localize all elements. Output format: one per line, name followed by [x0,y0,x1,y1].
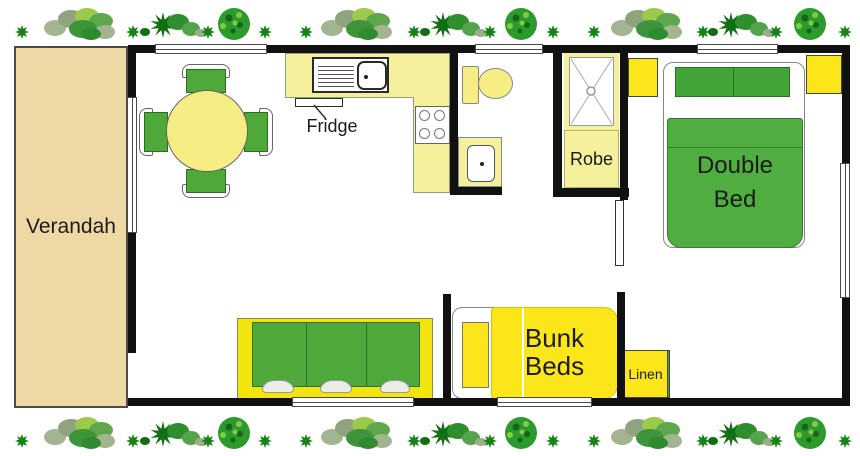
window [127,97,137,233]
dining-chair [186,169,226,193]
wall-robe-bottom [553,188,629,197]
plant-dot-icon [407,25,421,39]
window [497,397,592,407]
floor-plan: Verandah Fridge Robe [0,0,860,456]
wall-left-lower [128,233,136,353]
double-bed-label: Double Bed [668,119,802,247]
bathroom-basin-unit [458,137,502,187]
plant-dot-icon [483,434,497,448]
plant-dot-icon [15,434,29,448]
sink-drainboard [318,63,354,89]
verandah-label: Verandah [16,48,126,406]
burner-icon [419,128,430,139]
fridge-label: Fridge [294,114,370,138]
kitchen-sink [312,57,389,93]
closet-row: LinenRobeMirrorRobeLinen [623,350,842,398]
plant-dot-icon [696,25,710,39]
bunk-beds-label: Bunk Beds [492,308,617,398]
plant-tree-icon [794,8,826,40]
pillow-divider [733,68,734,96]
sink-basin [357,61,387,90]
wall-bottom [128,398,850,406]
bedside-table-right [806,55,842,94]
plant-spiky-icon [708,12,775,38]
wall-kitchen-bathroom [450,45,458,195]
plant-tree-icon [218,417,250,449]
bedroom-door-leaf [615,200,624,266]
plant-dot-icon [201,434,215,448]
plant-cluster-icon [321,417,392,449]
plant-dot-icon [483,25,497,39]
plant-tree-icon [794,417,826,449]
toilet-cistern [462,66,479,104]
plant-dot-icon [258,25,272,39]
plant-dot-icon [258,434,272,448]
window [840,163,850,298]
bottom-plants [0,411,860,455]
dining-chair [144,112,168,152]
couch-seat-cushion [320,380,352,393]
plant-dot-icon [769,25,783,39]
plant-tree-icon [505,417,537,449]
toilet-bowl [478,68,513,99]
window [292,397,414,407]
plant-dot-icon [838,25,852,39]
robe-label: Robe [565,131,618,187]
closet-cell-linen: Linen [623,350,668,398]
couch-divider [306,323,307,386]
plant-spiky-icon [708,421,775,447]
sink-faucet-dot [364,75,368,79]
plant-cluster-icon [611,8,682,40]
burner-icon [419,110,430,121]
plant-dot-icon [299,25,313,39]
basin-faucet-dot [480,162,484,166]
wall-shower-left [553,45,562,188]
plant-dot-icon [838,434,852,448]
burner-icon [434,128,445,139]
plant-dot-icon [299,434,313,448]
plant-cluster-icon [44,8,115,40]
plant-cluster-icon [321,8,392,40]
wall-bedroom-lower [617,292,625,398]
top-plants [0,2,860,46]
shower-glass-icon [570,58,613,125]
wall-bunkroom-left [443,294,451,398]
couch-divider [366,323,367,386]
shower-tray [569,57,614,126]
plant-tree-icon [218,8,250,40]
plant-spiky-icon [420,12,487,38]
plant-dot-icon [587,25,601,39]
dining-table [166,90,248,172]
wall-bedroom-upper [620,45,628,200]
plant-spiky-icon [140,12,207,38]
plant-spiky-icon [420,421,487,447]
couch-seat-cushion [262,380,294,393]
plant-dot-icon [546,25,560,39]
wall-left-upper [128,45,136,97]
robe-closet: Robe [564,130,619,188]
bunk-beds: Bunk Beds [491,307,618,399]
plant-dot-icon [769,434,783,448]
basin-bowl [467,145,495,182]
couch-back-cushions [252,322,420,387]
double-bed: Double Bed [667,118,803,248]
plant-tree-icon [505,8,537,40]
plant-dot-icon [126,25,140,39]
plant-cluster-icon [44,417,115,449]
plant-cluster-icon [611,417,682,449]
plant-dot-icon [126,434,140,448]
couch-seat-cushion [380,380,410,393]
verandah-area: Verandah [14,46,128,408]
plant-dot-icon [201,25,215,39]
plant-dot-icon [696,434,710,448]
wall-bathroom-bottom [450,187,502,195]
plant-dot-icon [546,434,560,448]
burner-icon [434,110,445,121]
plant-spiky-icon [140,421,207,447]
double-bed-pillows [675,67,790,97]
plant-dot-icon [15,25,29,39]
plant-dot-icon [587,434,601,448]
bedside-table-left [628,58,658,97]
plant-dot-icon [407,434,421,448]
stove-cooktop [415,106,450,144]
bunk-bed-pillow [462,322,489,388]
